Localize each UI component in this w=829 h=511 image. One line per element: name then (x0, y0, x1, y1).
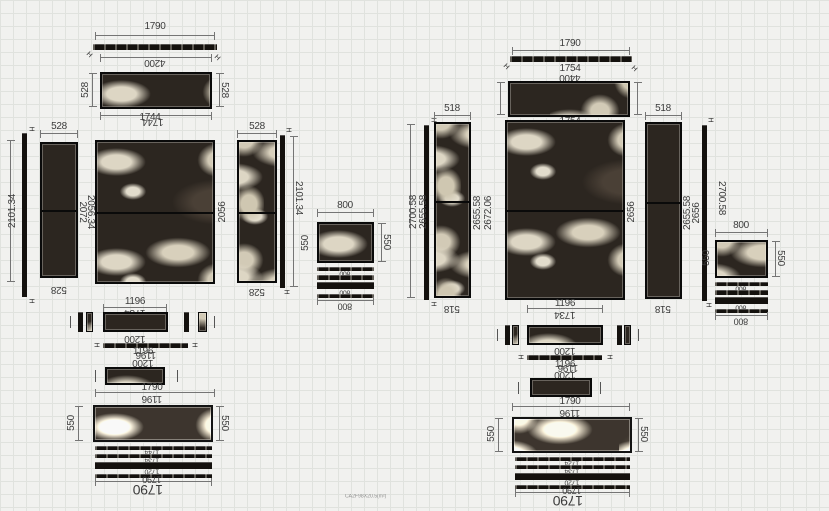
dim-label: 2655.58 (473, 196, 483, 230)
dim-line (78, 406, 79, 441)
dim-tick (497, 329, 498, 341)
edge-strip[interactable] (78, 312, 83, 332)
dim-label: 528 (249, 286, 265, 296)
marble-panel[interactable] (40, 142, 78, 278)
edge-strip[interactable] (317, 294, 374, 298)
edge-strip[interactable] (510, 56, 632, 62)
dim-label: 2656 (627, 201, 637, 222)
panel-seam (646, 202, 681, 204)
dim-tick (518, 382, 519, 394)
dim-label: 518 (444, 104, 460, 114)
edge-strip[interactable] (715, 290, 768, 295)
marble-strip[interactable] (530, 378, 592, 397)
dim-tick (177, 370, 178, 382)
section-mark: H (191, 342, 198, 347)
marble-strip[interactable] (103, 312, 168, 332)
dim-line (637, 82, 638, 115)
section-mark: H (85, 51, 94, 60)
dim-label: 2056.34 (85, 195, 95, 229)
dim-label: 2101.34 (8, 194, 18, 228)
marble-panel-main[interactable] (95, 140, 215, 284)
dim-line (40, 133, 78, 134)
dim-label: 528 (81, 82, 91, 98)
dim-label: 528 (219, 82, 229, 98)
edge-strip[interactable] (22, 133, 27, 297)
section-mark: H (213, 54, 222, 63)
dim-label: 1196 (125, 297, 145, 307)
section-mark: H (28, 126, 35, 131)
dim-label: 4200 (144, 57, 165, 67)
dim-label: 518 (655, 104, 671, 114)
marble-panel[interactable] (434, 122, 471, 298)
edge-strip[interactable] (280, 135, 285, 288)
dim-tick (95, 370, 96, 382)
dim-label: 1790 (144, 22, 165, 32)
section-mark: H (93, 342, 100, 347)
edge-strip[interactable] (702, 125, 707, 301)
dim-label: 528 (51, 122, 67, 132)
dim-line (237, 133, 277, 134)
marble-piece[interactable] (86, 312, 93, 332)
panel-seam (238, 212, 276, 214)
marble-panel-bottom[interactable] (512, 417, 632, 453)
panel-seam (435, 201, 470, 203)
panel-seam (41, 210, 77, 212)
dim-label: 2056 (218, 201, 228, 222)
edge-strip[interactable] (184, 312, 189, 332)
dim-label: 1744 (142, 116, 163, 126)
dim-line (434, 115, 471, 116)
dim-line (498, 418, 499, 452)
section-mark: H (430, 301, 437, 306)
section-mark: H (283, 289, 290, 294)
section-mark: H (517, 354, 524, 359)
dim-label: 528 (51, 284, 67, 294)
marble-piece[interactable] (512, 325, 519, 345)
dim-label: 1196 (560, 407, 580, 417)
section-mark: H (28, 298, 35, 303)
section-mark: H (285, 127, 292, 132)
marble-strip[interactable] (527, 325, 603, 345)
dim-label-total: 1790 (553, 494, 583, 508)
edge-strip[interactable] (715, 309, 768, 313)
marble-panel-side[interactable] (715, 240, 768, 278)
marble-panel-main[interactable] (505, 120, 625, 300)
dim-label: 550 (301, 235, 311, 251)
dim-label: 550 (381, 234, 391, 250)
dim-label: 1200 (554, 345, 575, 355)
section-mark: H (705, 302, 712, 307)
dim-line (715, 232, 768, 233)
cad-canvas[interactable]: 1790 H H 4200 528 528 1744 1744 H H 528 … (0, 0, 829, 511)
dim-label: 1790 (559, 397, 580, 407)
marble-panel[interactable] (645, 122, 682, 299)
dim-tick (214, 316, 215, 328)
marble-panel-bottom[interactable] (93, 405, 213, 442)
panel-seam (506, 210, 624, 212)
dim-line (645, 115, 682, 116)
dim-label: 550 (775, 250, 785, 266)
edge-strip[interactable] (93, 44, 217, 50)
marble-panel-side[interactable] (317, 222, 374, 263)
section-mark: H (630, 65, 639, 74)
dim-label: 1200 (132, 357, 153, 367)
panel-seam (96, 212, 214, 214)
marble-piece[interactable] (198, 312, 207, 332)
dim-label: 550 (67, 415, 77, 431)
dim-line (95, 35, 215, 36)
dim-label: 1200 (124, 333, 145, 343)
dim-label: 550 (702, 250, 712, 266)
dim-label: 800 (734, 317, 748, 326)
section-mark: H (502, 63, 511, 72)
dim-label: 1790 (559, 39, 580, 49)
dim-label: 1790 (141, 383, 162, 393)
dim-label: 550 (487, 426, 497, 442)
dim-label: 1196 (555, 299, 575, 309)
dim-tick (638, 329, 639, 341)
marble-panel[interactable] (100, 72, 212, 109)
dim-label: 2700.58 (716, 181, 726, 215)
section-mark: H (606, 354, 613, 359)
dim-label: 518 (444, 303, 460, 313)
dim-label: 2655.58 (419, 195, 429, 229)
dim-label: 800 (733, 221, 749, 231)
edge-strip[interactable] (317, 275, 374, 280)
dim-line (92, 73, 93, 107)
marble-piece[interactable] (624, 325, 631, 345)
dim-label-total: 1790 (133, 483, 163, 497)
dim-label: 2672.06 (484, 196, 494, 230)
dim-tick (600, 382, 601, 394)
dim-label: 550 (638, 426, 648, 442)
dim-label: 2101.34 (293, 181, 303, 215)
section-mark: H (707, 117, 714, 122)
marble-panel[interactable] (508, 81, 630, 117)
edge-strip[interactable] (617, 325, 622, 345)
edge-strip[interactable] (505, 325, 510, 345)
dim-label: 800 (337, 201, 353, 211)
dim-label: 1196 (142, 393, 162, 403)
dim-tick (70, 316, 71, 328)
dim-label: 2656 (692, 202, 702, 223)
dim-line (500, 82, 501, 115)
dim-line (512, 50, 630, 51)
dim-label: 550 (219, 415, 229, 431)
dim-label: 1734 (554, 309, 575, 319)
dim-label: 528 (249, 122, 265, 132)
drawing-caption: CA2F98X20.5(m²) (345, 494, 386, 499)
dim-label: 800 (338, 302, 352, 311)
dim-label: 518 (655, 303, 671, 313)
marble-panel[interactable] (237, 140, 277, 283)
dim-line (317, 212, 374, 213)
